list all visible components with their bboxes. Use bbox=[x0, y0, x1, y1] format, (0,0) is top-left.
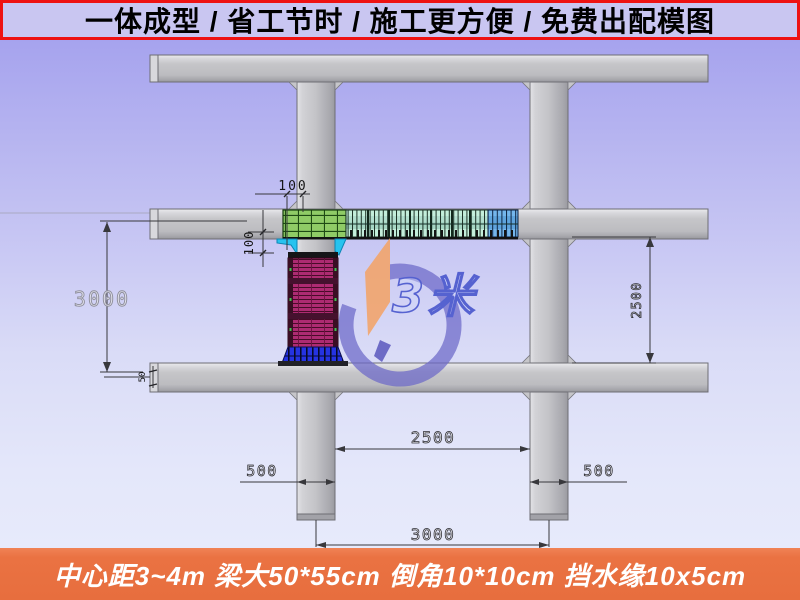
dim-beam-width-right-label: 500 bbox=[583, 462, 615, 480]
top-beam bbox=[158, 55, 708, 82]
column-magenta-panel bbox=[288, 258, 338, 347]
dim-left-bay-height-label: 3000 bbox=[74, 287, 130, 311]
formwork-bottom-edge bbox=[283, 237, 518, 240]
watermark-orange-leaf bbox=[365, 238, 390, 336]
watermark-blue-leaf bbox=[374, 340, 391, 362]
banner-text: 一体成型 / 省工节时 / 施工更方便 / 免费出配模图 bbox=[85, 0, 715, 40]
formwork-bottom-teeth bbox=[346, 230, 518, 237]
dim-right-clear-height-label: 2500 bbox=[630, 281, 645, 318]
column-side-band-left bbox=[288, 258, 293, 347]
vertical-beam-right bbox=[530, 82, 568, 520]
column-separator-2 bbox=[288, 313, 338, 319]
watermark-text: 3米 bbox=[392, 269, 479, 323]
dim-curb-height-label: 50 bbox=[138, 372, 148, 383]
top-banner: 一体成型 / 省工节时 / 施工更方便 / 免费出配模图 bbox=[0, 0, 800, 40]
top-beam-endcap bbox=[150, 55, 158, 82]
column-side-band-right bbox=[333, 258, 338, 347]
diagram-area: 100 100 3000 50 2500 2500 bbox=[0, 40, 800, 548]
footer-bar: 中心距3~4m 梁大50*55cm 倒角10*10cm 挡水缘10x5cm bbox=[0, 548, 800, 600]
column-top-band bbox=[288, 252, 338, 258]
footer-text: 中心距3~4m 梁大50*55cm 倒角10*10cm 挡水缘10x5cm bbox=[54, 556, 746, 593]
page: 一体成型 / 省工节时 / 施工更方便 / 免费出配模图 bbox=[0, 0, 800, 600]
dim-panel-overhang-label: 100 bbox=[278, 179, 307, 194]
dim-bottom-clear-span-label: 2500 bbox=[411, 428, 456, 447]
watermark-logo: 3米 bbox=[346, 238, 479, 379]
formwork-panel-green bbox=[283, 210, 346, 238]
vertical-beam-right-endcap bbox=[530, 514, 568, 520]
structure-diagram: 100 100 3000 50 2500 2500 bbox=[0, 40, 800, 548]
column-base-blue bbox=[282, 347, 344, 363]
bottom-beam-endcap bbox=[150, 363, 158, 392]
vertical-beam-left-endcap bbox=[297, 514, 335, 520]
column-base-plate bbox=[278, 361, 348, 366]
column-separator-1 bbox=[288, 278, 338, 284]
formwork-column-panel bbox=[278, 252, 348, 366]
middle-beam-endcap bbox=[150, 209, 158, 239]
dim-beam-width-left-label: 500 bbox=[246, 462, 278, 480]
dim-haunch-drop-label: 100 bbox=[242, 231, 256, 256]
dim-center-spacing-label: 3000 bbox=[411, 525, 456, 544]
